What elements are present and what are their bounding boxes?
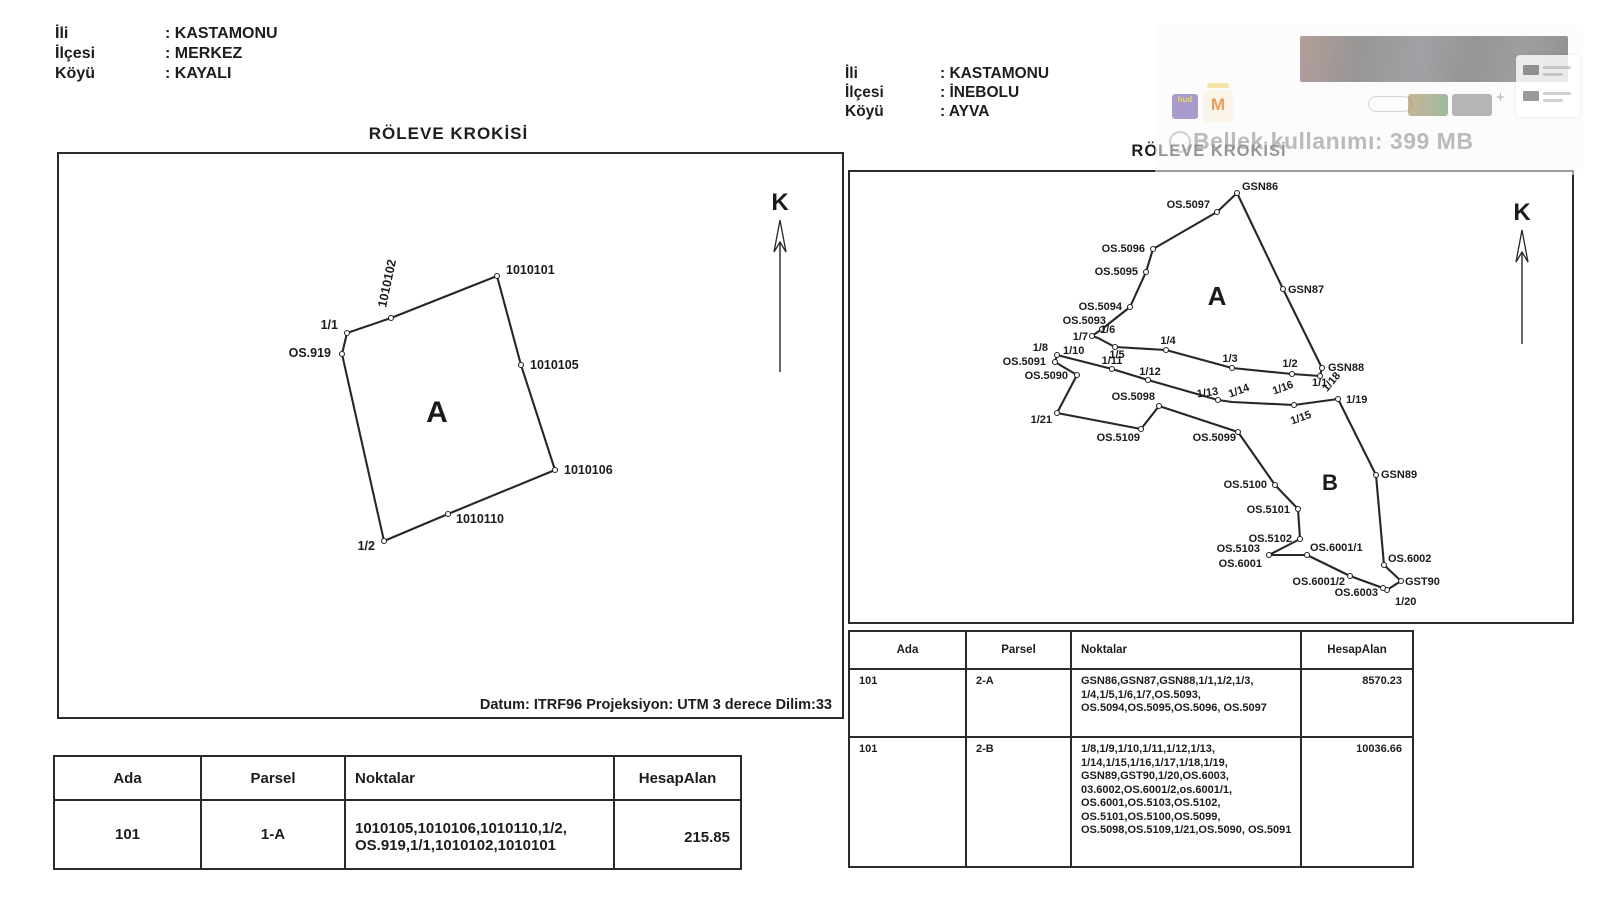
memory-usage-text: Bellek kullanımı: 399 MB [1193, 128, 1473, 155]
meta-label-ili: İli [55, 24, 165, 44]
vertex-1-21 [1055, 411, 1060, 416]
vertex-1010101 [495, 274, 500, 279]
vertex-1-8 [1055, 353, 1060, 358]
table-row: 101 2-B 1/8,1/9,1/10,1/11,1/12,1/13, 1/1… [849, 737, 1413, 867]
meta-value-ilcesi: : MERKEZ [165, 44, 242, 64]
point-label: OS.5099 [1193, 432, 1236, 444]
refresh-icon [1169, 131, 1191, 153]
meta-value-koyu: : KAYALI [165, 64, 231, 84]
point-label: 1010106 [564, 463, 613, 477]
vertex-1-4 [1164, 348, 1169, 353]
point-label: GSN86 [1242, 181, 1278, 193]
meta-value-ili: : KASTAMONU [165, 24, 278, 44]
point-label: OS.5098 [1112, 391, 1155, 403]
ghost-video-thumb [1523, 65, 1539, 75]
vertex-1010106 [553, 468, 558, 473]
meta-row-koyu: Köyü : AYVA [845, 102, 1049, 121]
ghost-playlist-card [1516, 55, 1580, 117]
vertex-1-2 [1290, 372, 1295, 377]
meta-row-koyu: Köyü : KAYALI [55, 64, 278, 84]
point-label: 1010102 [375, 258, 399, 309]
cell-noktalar: 1/8,1/9,1/10,1/11,1/12,1/13, 1/14,1/15,1… [1071, 737, 1301, 867]
ghost-text-line [1543, 92, 1571, 95]
cell-ada: 101 [54, 800, 201, 869]
point-label: 1/15 [1289, 409, 1313, 428]
north-label: K [771, 189, 789, 216]
col-header-ada: Ada [54, 756, 201, 800]
point-label: OS.6001 [1219, 558, 1262, 570]
point-label: OS.5091 [1003, 356, 1046, 368]
ghost-text-line [1543, 99, 1563, 102]
point-label: OS.5103 [1217, 543, 1260, 555]
scan-page: İli : KASTAMONU İlçesi : MERKEZ Köyü : K… [0, 0, 1600, 900]
point-label: 1/6 [1100, 324, 1115, 336]
vertex-GSN88 [1320, 366, 1325, 371]
vertex-1-11 [1110, 367, 1115, 372]
meta-row-ilcesi: İlçesi : İNEBOLU [845, 83, 1049, 102]
doc-left-sketch-box: 101010110101021/1OS.91910101051010106101… [57, 152, 844, 719]
cell-ada: 101 [849, 737, 966, 867]
meta-value-ilcesi: : İNEBOLU [940, 83, 1019, 102]
table-header-row: Ada Parsel Noktalar HesapAlan [54, 756, 741, 800]
point-label: OS.6003 [1335, 587, 1378, 599]
cell-hesapalan: 10036.66 [1301, 737, 1413, 867]
vertex-OS.6001-2 [1348, 574, 1353, 579]
col-header-hesapalan: HesapAlan [1301, 631, 1413, 669]
doc-right-meta: İli : KASTAMONU İlçesi : İNEBOLU Köyü : … [845, 64, 1049, 121]
doc-right-sketch: GSN86OS.5097OS.5096OS.5095OS.5094OS.5093… [850, 172, 1572, 622]
vertex-1-7 [1090, 334, 1095, 339]
vertex-OS.5100 [1273, 483, 1278, 488]
point-label: 1010110 [456, 512, 504, 526]
doc-left-title: RÖLEVE KROKİSİ [57, 124, 840, 144]
vertex-OS.5096 [1151, 247, 1156, 252]
point-label: GSN89 [1381, 469, 1417, 481]
point-label: 1/19 [1346, 394, 1367, 406]
meta-row-ili: İli : KASTAMONU [845, 64, 1049, 83]
vertex-1-2 [382, 539, 387, 544]
meta-row-ilcesi: İlçesi : MERKEZ [55, 44, 278, 64]
point-label: OS.5095 [1095, 266, 1138, 278]
point-label: 1/20 [1395, 596, 1416, 608]
vertex-OS.5098 [1157, 404, 1162, 409]
point-label: OS.919 [289, 346, 331, 360]
vertex-GSN87 [1281, 287, 1286, 292]
point-label: OS.5100 [1224, 479, 1267, 491]
vertex-GSN89 [1374, 473, 1379, 478]
doc-left-sketch: 101010110101021/1OS.91910101051010106101… [59, 154, 842, 717]
table-header-row: Ada Parsel Noktalar HesapAlan [849, 631, 1413, 669]
hud-app-icon: hud [1172, 94, 1198, 119]
vertex-OS.5090 [1075, 373, 1080, 378]
vertex-GST90 [1399, 579, 1404, 584]
region-label: A [1208, 281, 1227, 311]
point-label: OS.5101 [1247, 504, 1290, 516]
doc-left-table: Ada Parsel Noktalar HesapAlan 101 1-A 10… [53, 755, 742, 870]
region-label: B [1322, 470, 1338, 495]
vertex-OS.5101 [1296, 507, 1301, 512]
point-label: 1/11 [1102, 355, 1123, 367]
point-label: 1/3 [1222, 353, 1237, 365]
col-header-hesapalan: HesapAlan [614, 756, 741, 800]
doc-left-meta: İli : KASTAMONU İlçesi : MERKEZ Köyü : K… [55, 24, 278, 84]
vertex-OS.5109 [1139, 427, 1144, 432]
point-label: GSN87 [1288, 284, 1324, 296]
table-row: 101 1-A 1010105,1010106,1010110,1/2, OS.… [54, 800, 741, 869]
cell-hesapalan: 8570.23 [1301, 669, 1413, 737]
point-label: OS.6002 [1388, 553, 1431, 565]
datum-note: Datum: ITRF96 Projeksiyon: UTM 3 derece … [480, 697, 832, 713]
meta-label-koyu: Köyü [55, 64, 165, 84]
cell-hesapalan: 215.85 [614, 800, 741, 869]
ghost-text-line [1543, 66, 1571, 69]
vertex-OS.5094 [1128, 305, 1133, 310]
cell-parsel: 2-A [966, 669, 1071, 737]
vertex-OS.5099 [1236, 430, 1241, 435]
vertex-OS.6001-1 [1305, 553, 1310, 558]
col-header-noktalar: Noktalar [1071, 631, 1301, 669]
point-label: OS.5109 [1097, 432, 1140, 444]
point-label: OS.5094 [1079, 301, 1123, 313]
vertex-OS.5095 [1144, 270, 1149, 275]
ghost-search-pill [1368, 96, 1412, 112]
point-label: 1/12 [1139, 366, 1160, 378]
meta-label-ilcesi: İlçesi [845, 83, 940, 102]
plus-icon: + [1496, 89, 1505, 106]
point-label: GST90 [1405, 576, 1440, 588]
col-header-ada: Ada [849, 631, 966, 669]
north-label: K [1513, 199, 1531, 226]
vertex-1-3 [1230, 366, 1235, 371]
point-label: OS.6001/1 [1310, 542, 1363, 554]
vertex-OS.5102 [1298, 537, 1303, 542]
point-label: OS.5096 [1102, 243, 1145, 255]
point-label: 1/10 [1063, 345, 1084, 357]
point-label: 1/14 [1227, 382, 1252, 401]
ghost-text-line [1543, 73, 1563, 76]
vertex-1-1 [345, 331, 350, 336]
ghost-overlay-window: hud M + Bellek kullanımı: 399 MB [1155, 25, 1583, 175]
doc-right-table: Ada Parsel Noktalar HesapAlan 101 2-A GS… [848, 630, 1414, 868]
point-label: 1/7 [1073, 331, 1088, 343]
cell-parsel: 1-A [201, 800, 345, 869]
table-row: 101 2-A GSN86,GSN87,GSN88,1/1,1/2,1/3, 1… [849, 669, 1413, 737]
vertex-OS.6001 [1267, 553, 1272, 558]
meta-label-ilcesi: İlçesi [55, 44, 165, 64]
point-label: 1/1 [321, 318, 338, 332]
meta-value-ili: : KASTAMONU [940, 64, 1049, 83]
vertex-OS.6002 [1382, 563, 1387, 568]
meta-value-koyu: : AYVA [940, 102, 989, 121]
cell-parsel: 2-B [966, 737, 1071, 867]
point-label: 1010105 [530, 358, 579, 372]
vertex-1010105 [519, 363, 524, 368]
vertex-OS.919 [340, 352, 345, 357]
vertex-1-16 [1292, 403, 1297, 408]
vertex-GSN86 [1235, 191, 1240, 196]
region-label: A [426, 396, 448, 429]
ghost-yellow-bar [1207, 83, 1229, 88]
vertex-1010110 [446, 512, 451, 517]
vertex-OS.5097 [1215, 210, 1220, 215]
ghost-video-thumb [1523, 91, 1539, 101]
point-label: 1010101 [506, 263, 555, 277]
doc-right-sketch-box: GSN86OS.5097OS.5096OS.5095OS.5094OS.5093… [848, 170, 1574, 624]
point-label: 1/4 [1160, 335, 1176, 347]
vertex-1010102 [389, 316, 394, 321]
col-header-parsel: Parsel [201, 756, 345, 800]
meta-label-koyu: Köyü [845, 102, 940, 121]
ghost-card-dark [1452, 94, 1492, 116]
point-label: 1/8 [1033, 342, 1048, 354]
point-label: 1/2 [1282, 358, 1297, 370]
meta-label-ili: İli [845, 64, 940, 83]
vertex-1-12 [1146, 378, 1151, 383]
col-header-noktalar: Noktalar [345, 756, 614, 800]
parcel-1A [342, 276, 555, 541]
m-app-icon: M [1203, 90, 1233, 122]
col-header-parsel: Parsel [966, 631, 1071, 669]
ghost-card-green [1408, 94, 1448, 116]
vertex-1-13 [1216, 398, 1221, 403]
point-label: 1/2 [358, 539, 375, 553]
vertex-OS.6003 [1381, 586, 1386, 591]
point-label: OS.5090 [1025, 370, 1068, 382]
vertex-1-19 [1336, 397, 1341, 402]
point-label: 1/21 [1031, 414, 1052, 426]
cell-ada: 101 [849, 669, 966, 737]
meta-row-ili: İli : KASTAMONU [55, 24, 278, 44]
cell-noktalar: GSN86,GSN87,GSN88,1/1,1/2,1/3, 1/4,1/5,1… [1071, 669, 1301, 737]
point-label: 1/16 [1271, 379, 1295, 398]
cell-noktalar: 1010105,1010106,1010110,1/2, OS.919,1/1,… [345, 800, 614, 869]
point-label: OS.5097 [1167, 199, 1210, 211]
vertex-OS.5091 [1053, 360, 1058, 365]
